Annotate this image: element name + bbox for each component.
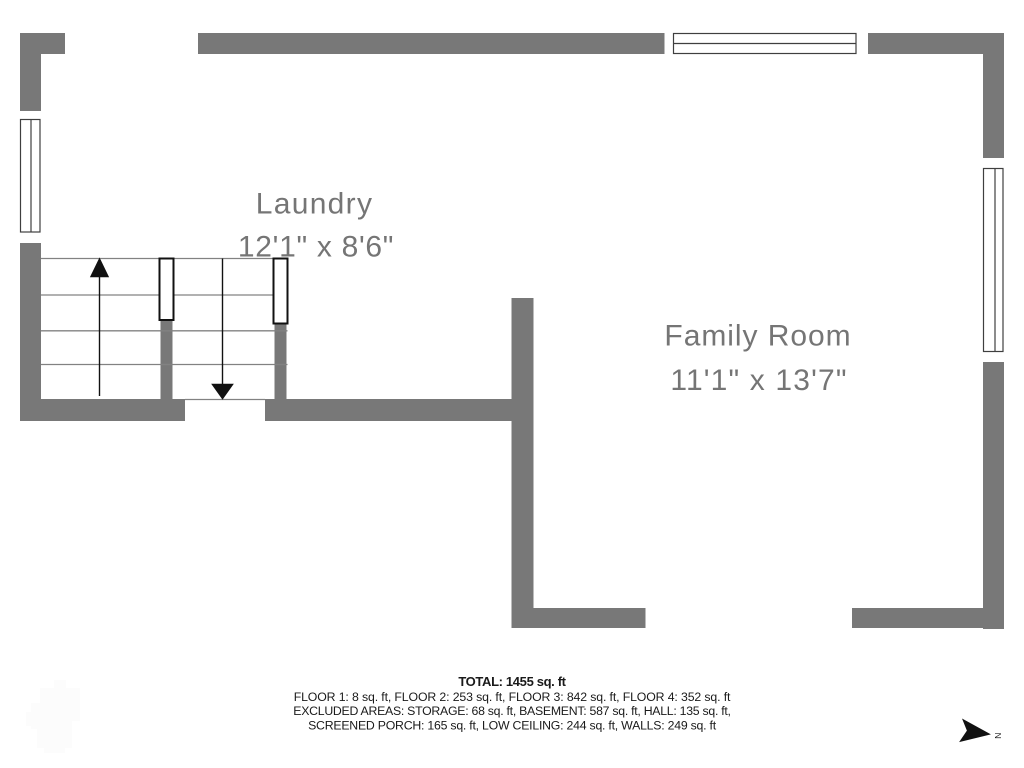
svg-text:TOTAL: 1455 sq. ft: TOTAL: 1455 sq. ft [458,674,566,689]
svg-text:FLOOR 1: 8 sq. ft, FLOOR 2: 25: FLOOR 1: 8 sq. ft, FLOOR 2: 253 sq. ft, … [294,690,731,704]
svg-text:N: N [993,733,1003,739]
svg-text:SCREENED PORCH: 165 sq. ft, LO: SCREENED PORCH: 165 sq. ft, LOW CEILING:… [308,718,717,732]
svg-text:Family Room: Family Room [664,320,851,353]
svg-text:Laundry: Laundry [256,188,374,221]
svg-text:11'1" x 13'7": 11'1" x 13'7" [670,364,847,397]
svg-text:EXCLUDED AREAS: STORAGE: 68 sq: EXCLUDED AREAS: STORAGE: 68 sq. ft, BASE… [293,704,730,718]
svg-text:12'1" x 8'6": 12'1" x 8'6" [238,231,394,264]
